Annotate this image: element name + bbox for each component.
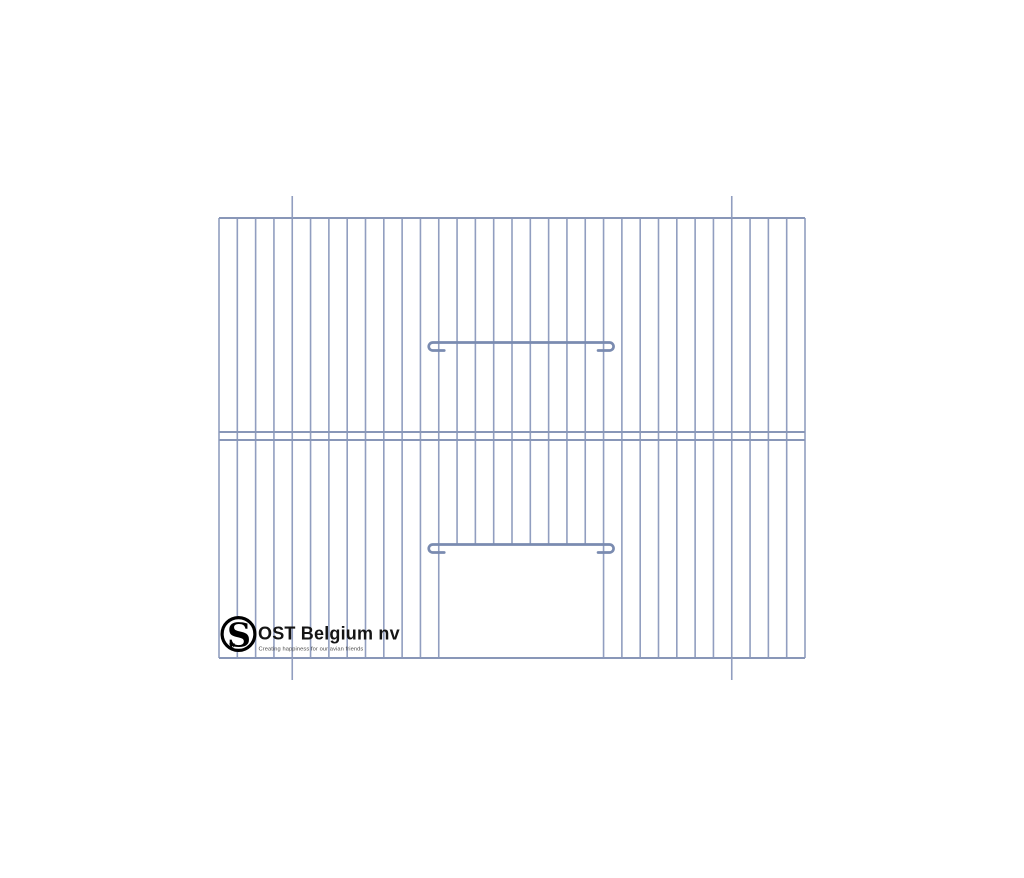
door-hanger-bar <box>429 545 614 553</box>
logo-monogram-accent-letter: v <box>229 641 235 652</box>
panel-wireframe <box>219 196 805 680</box>
logo-company-name: OST Belgium nv <box>258 624 400 644</box>
vertical-wires <box>219 218 805 658</box>
cage-front-drawing: S v OST Belgium nv Creating happiness fo… <box>0 0 1024 878</box>
drawing-page: S v OST Belgium nv Creating happiness fo… <box>0 0 1024 878</box>
logo-tagline: Creating happiness for our avian friends <box>259 647 364 653</box>
